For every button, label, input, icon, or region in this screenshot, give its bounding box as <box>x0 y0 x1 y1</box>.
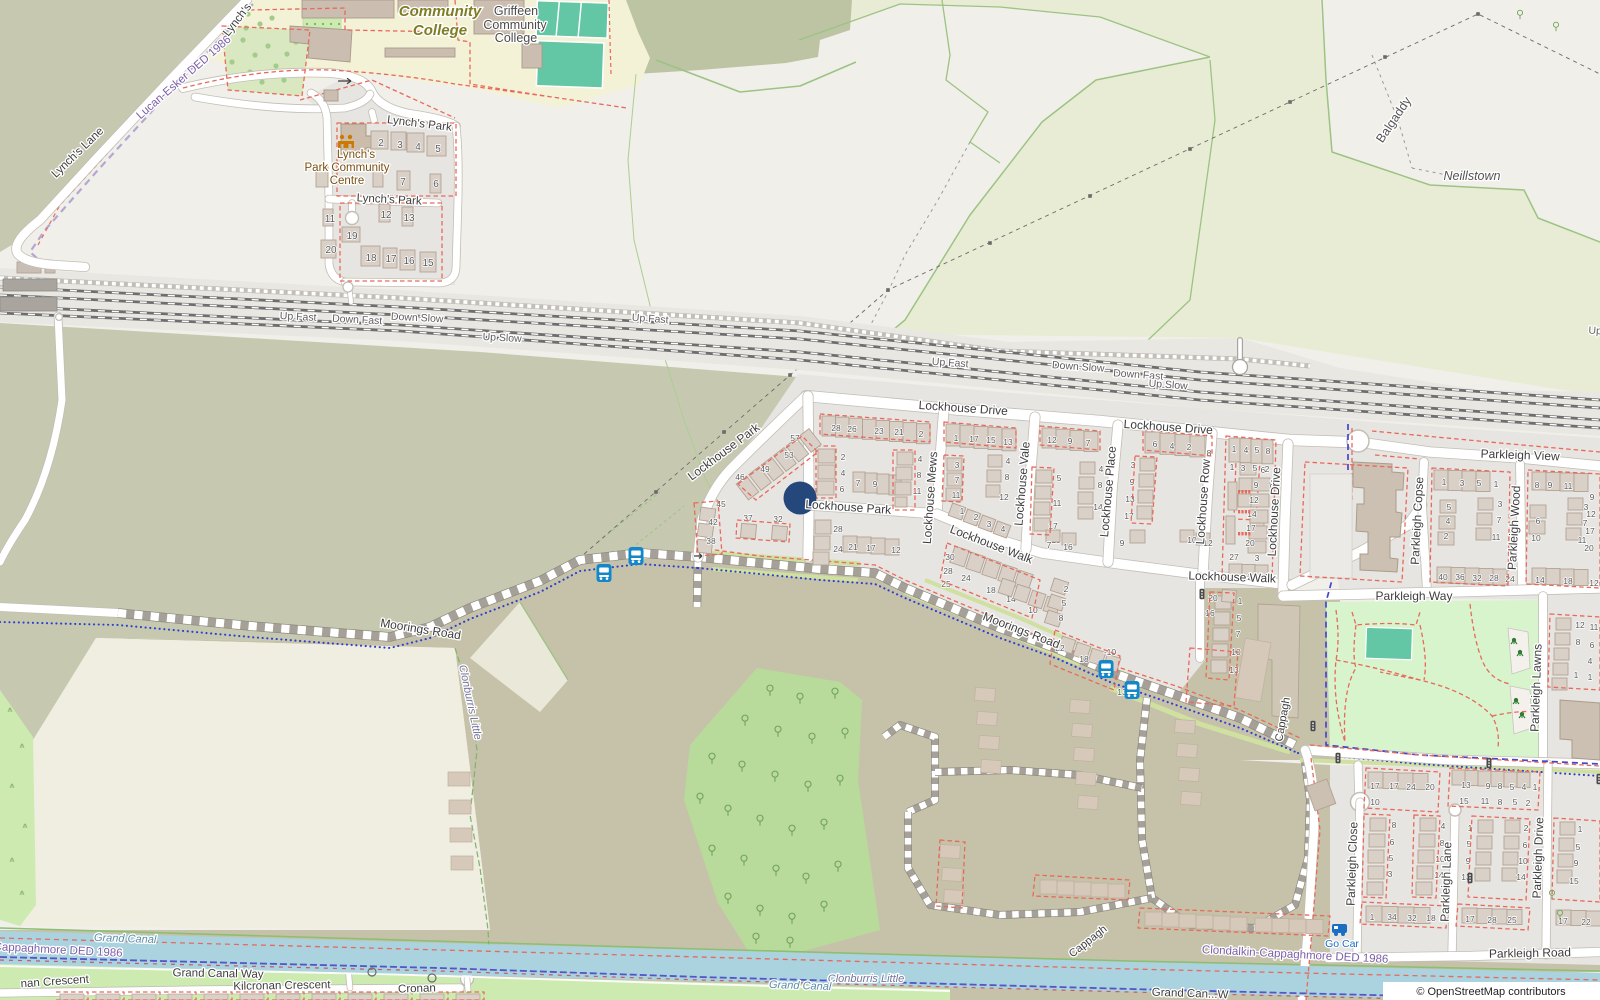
svg-text:6: 6 <box>433 179 439 190</box>
svg-text:24: 24 <box>833 544 843 554</box>
svg-text:Park Community: Park Community <box>305 162 390 174</box>
svg-text:2: 2 <box>1064 584 1069 594</box>
svg-text:Lynch's: Lynch's <box>337 149 375 161</box>
svg-text:18: 18 <box>1079 654 1089 664</box>
svg-text:Up Fast: Up Fast <box>631 312 669 327</box>
svg-text:Parkleigh Close: Parkleigh Close <box>1344 821 1361 906</box>
svg-text:Parkleigh View: Parkleigh View <box>1480 447 1560 464</box>
svg-text:Grand Canal: Grand Canal <box>769 979 832 993</box>
svg-text:3: 3 <box>987 519 992 529</box>
svg-text:4: 4 <box>1522 782 1527 792</box>
svg-text:8: 8 <box>1392 820 1397 830</box>
svg-text:2: 2 <box>919 429 924 439</box>
svg-text:13: 13 <box>1461 780 1471 790</box>
svg-text:5: 5 <box>1510 782 1515 792</box>
svg-text:46: 46 <box>735 472 745 482</box>
svg-text:5: 5 <box>435 144 441 155</box>
svg-text:8: 8 <box>1576 637 1581 647</box>
svg-text:17: 17 <box>1370 781 1380 791</box>
svg-text:5: 5 <box>1576 842 1581 852</box>
svg-text:17: 17 <box>1246 523 1256 533</box>
svg-text:6: 6 <box>1523 840 1528 850</box>
svg-text:18: 18 <box>1563 576 1573 586</box>
svg-text:1: 1 <box>1588 672 1593 682</box>
svg-text:11: 11 <box>1564 481 1573 491</box>
svg-text:2: 2 <box>1187 442 1192 452</box>
svg-text:1: 1 <box>960 506 965 516</box>
svg-text:9: 9 <box>1486 781 1491 791</box>
svg-text:9: 9 <box>873 479 878 489</box>
svg-text:5: 5 <box>1062 598 1067 608</box>
svg-text:© OpenStreetMap contributors: © OpenStreetMap contributors <box>1416 986 1566 998</box>
svg-text:9: 9 <box>1574 858 1579 868</box>
svg-text:37: 37 <box>743 513 753 523</box>
svg-text:-10: -10 <box>1104 647 1117 657</box>
svg-text:11: 11 <box>1492 532 1501 542</box>
svg-text:6: 6 <box>1153 439 1158 449</box>
svg-text:7: 7 <box>400 177 406 188</box>
svg-text:3: 3 <box>1460 478 1465 488</box>
svg-text:8: 8 <box>917 470 922 480</box>
svg-text:11: 11 <box>913 486 922 496</box>
svg-text:4: 4 <box>841 468 846 478</box>
svg-text:Grand Can...W: Grand Can...W <box>1152 987 1229 1000</box>
svg-text:2: 2 <box>1444 531 1449 541</box>
svg-text:8: 8 <box>1059 613 1064 623</box>
svg-text:Griffeen: Griffeen <box>494 4 538 18</box>
svg-text:21: 21 <box>848 542 858 552</box>
svg-text:Grand Canal: Grand Canal <box>94 932 157 946</box>
svg-text:32: 32 <box>1472 573 1482 583</box>
svg-text:20: 20 <box>325 245 337 256</box>
svg-text:11: 11 <box>1053 498 1062 508</box>
svg-text:College: College <box>413 22 467 39</box>
svg-text:20: 20 <box>1245 538 1255 548</box>
svg-text:4: 4 <box>1006 456 1011 466</box>
svg-text:1: 1 <box>1578 824 1583 834</box>
svg-text:13: 13 <box>1003 437 1013 447</box>
svg-text:5: 5 <box>1389 853 1394 863</box>
svg-text:21: 21 <box>894 427 904 437</box>
svg-text:27: 27 <box>1229 552 1239 562</box>
svg-text:24: 24 <box>1505 574 1515 584</box>
svg-text:13: 13 <box>403 213 415 224</box>
svg-text:Parkleigh Way: Parkleigh Way <box>1376 589 1453 603</box>
svg-text:11: 11 <box>325 214 336 225</box>
svg-text:17: 17 <box>1389 781 1399 791</box>
svg-text:10: 10 <box>1518 856 1528 866</box>
svg-text:16: 16 <box>1063 542 1073 552</box>
svg-text:3: 3 <box>1388 869 1393 879</box>
svg-text:5: 5 <box>1447 502 1452 512</box>
svg-text:17: 17 <box>866 543 876 553</box>
svg-text:Up Fast: Up Fast <box>931 356 969 371</box>
svg-text:14: 14 <box>1516 872 1526 882</box>
svg-text:12: 12 <box>1047 435 1057 445</box>
svg-text:Up Fast: Up Fast <box>279 310 316 324</box>
svg-text:9: 9 <box>1254 480 1259 490</box>
svg-text:24: 24 <box>961 573 971 583</box>
svg-text:16: 16 <box>1205 608 1215 618</box>
svg-text:40: 40 <box>1438 572 1448 582</box>
svg-text:Go Car: Go Car <box>1325 938 1359 950</box>
svg-text:6: 6 <box>1390 837 1395 847</box>
svg-text:Grand Canal Way: Grand Canal Way <box>172 967 263 981</box>
svg-text:15: 15 <box>1459 796 1469 806</box>
svg-text:17: 17 <box>1124 511 1134 521</box>
svg-text:28: 28 <box>943 566 953 576</box>
svg-text:18: 18 <box>986 585 996 595</box>
svg-text:12: 12 <box>1589 578 1599 588</box>
svg-text:9: 9 <box>1548 480 1553 490</box>
svg-text:3: 3 <box>1255 553 1260 563</box>
svg-text:Clonburris Little: Clonburris Little <box>828 973 904 985</box>
svg-text:Community: Community <box>399 3 482 20</box>
svg-text:Up: Up <box>1588 325 1600 338</box>
svg-text:8: 8 <box>1005 472 1010 482</box>
svg-text:1: 1 <box>1533 782 1538 792</box>
svg-text:10: 10 <box>1531 533 1541 543</box>
svg-text:7: 7 <box>1583 518 1588 528</box>
svg-text:28: 28 <box>1487 915 1497 925</box>
svg-text:15: 15 <box>422 258 434 269</box>
svg-text:13: 13 <box>1125 494 1135 504</box>
svg-text:1: 1 <box>1574 670 1579 680</box>
svg-text:23: 23 <box>874 426 884 436</box>
svg-text:12: 12 <box>891 545 901 555</box>
svg-text:Kilcronan Crescent: Kilcronan Crescent <box>233 979 331 993</box>
svg-text:12: 12 <box>380 210 392 221</box>
svg-text:17: 17 <box>1465 914 1475 924</box>
svg-text:4: 4 <box>1441 821 1446 831</box>
svg-text:28: 28 <box>831 423 841 433</box>
svg-text:1: 1 <box>954 433 959 443</box>
svg-text:18: 18 <box>365 253 377 264</box>
svg-text:6: 6 <box>1536 516 1541 526</box>
svg-text:4: 4 <box>1170 441 1175 451</box>
svg-text:12: 12 <box>1575 620 1585 630</box>
svg-text:1: 1 <box>1230 462 1235 472</box>
svg-text:15: 15 <box>1569 876 1579 886</box>
svg-text:2: 2 <box>1524 823 1529 833</box>
svg-text:4: 4 <box>415 142 421 153</box>
svg-text:8: 8 <box>1498 797 1503 807</box>
svg-text:5: 5 <box>1253 463 1258 473</box>
svg-text:2: 2 <box>841 452 846 462</box>
svg-text:5: 5 <box>1477 478 1482 488</box>
svg-text:5: 5 <box>1255 445 1260 455</box>
svg-text:17: 17 <box>969 434 979 444</box>
svg-text:7: 7 <box>1047 540 1052 550</box>
svg-text:7: 7 <box>856 478 861 488</box>
svg-text:25: 25 <box>1507 915 1517 925</box>
svg-text:6: 6 <box>1590 640 1595 650</box>
svg-text:11: 11 <box>952 490 961 500</box>
svg-text:Parkleigh Drive: Parkleigh Drive <box>1530 817 1547 899</box>
svg-text:3: 3 <box>1241 463 1246 473</box>
svg-text:9: 9 <box>1120 538 1125 548</box>
svg-text:24: 24 <box>1406 782 1416 792</box>
svg-text:College: College <box>495 31 537 45</box>
svg-text:11: 11 <box>1481 796 1490 806</box>
svg-text:2: 2 <box>974 512 979 522</box>
svg-text:11: 11 <box>1578 535 1587 545</box>
svg-text:3: 3 <box>1498 499 1503 509</box>
svg-text:1: 1 <box>1370 912 1375 922</box>
svg-text:18: 18 <box>1426 913 1436 923</box>
svg-text:8: 8 <box>1498 781 1503 791</box>
svg-text:7: 7 <box>1497 515 1502 525</box>
svg-text:8: 8 <box>1266 446 1271 456</box>
svg-text:10: 10 <box>1370 797 1380 807</box>
svg-text:42: 42 <box>708 517 718 527</box>
svg-text:4: 4 <box>918 454 923 464</box>
svg-text:4: 4 <box>1588 656 1593 666</box>
svg-text:1: 1 <box>1494 479 1499 489</box>
svg-text:12: 12 <box>1249 495 1259 505</box>
svg-text:15: 15 <box>986 435 996 445</box>
svg-text:Cronan: Cronan <box>398 982 436 995</box>
svg-text:2: 2 <box>378 138 384 149</box>
svg-text:28: 28 <box>833 524 843 534</box>
svg-text:22: 22 <box>1581 917 1591 927</box>
svg-text:4: 4 <box>1244 445 1249 455</box>
svg-text:Centre: Centre <box>330 175 365 187</box>
svg-text:11: 11 <box>1590 622 1599 632</box>
svg-text:2: 2 <box>1526 798 1531 808</box>
svg-text:9: 9 <box>1068 436 1073 446</box>
svg-text:Neillstown: Neillstown <box>1444 169 1501 183</box>
svg-text:16: 16 <box>403 256 415 267</box>
svg-text:7: 7 <box>955 475 960 485</box>
svg-text:26: 26 <box>847 424 857 434</box>
svg-text:3: 3 <box>1584 502 1589 512</box>
svg-text:Parkleigh Lane: Parkleigh Lane <box>1438 841 1455 922</box>
svg-text:7: 7 <box>1236 629 1241 639</box>
svg-text:8: 8 <box>1535 480 1540 490</box>
svg-text:5: 5 <box>1057 473 1062 483</box>
svg-text:19: 19 <box>346 231 358 242</box>
svg-text:5: 5 <box>1513 797 1518 807</box>
svg-text:12: 12 <box>999 492 1009 502</box>
svg-text:28: 28 <box>1489 573 1499 583</box>
svg-text:32: 32 <box>1407 913 1417 923</box>
svg-text:34: 34 <box>1387 912 1397 922</box>
svg-text:1: 1 <box>1238 596 1243 606</box>
svg-text:Parkleigh Road: Parkleigh Road <box>1489 945 1571 960</box>
svg-text:4: 4 <box>1446 516 1451 526</box>
svg-text:38: 38 <box>706 536 716 546</box>
svg-text:Up Slow: Up Slow <box>482 331 522 345</box>
svg-text:53: 53 <box>784 450 794 460</box>
svg-text:Community: Community <box>483 18 547 32</box>
svg-text:6: 6 <box>840 484 845 494</box>
svg-text:30: 30 <box>945 552 955 562</box>
svg-text:4: 4 <box>1001 524 1006 534</box>
svg-text:1: 1 <box>1442 477 1447 487</box>
svg-text:1: 1 <box>1232 444 1237 454</box>
svg-text:7: 7 <box>1086 438 1091 448</box>
svg-text:3: 3 <box>397 140 403 151</box>
svg-text:9: 9 <box>1590 492 1595 502</box>
svg-text:20: 20 <box>1425 782 1435 792</box>
svg-text:36: 36 <box>1455 572 1465 582</box>
svg-text:3: 3 <box>955 460 960 470</box>
svg-text:5: 5 <box>1237 613 1242 623</box>
svg-text:17: 17 <box>385 254 397 265</box>
svg-text:14: 14 <box>1535 575 1545 585</box>
